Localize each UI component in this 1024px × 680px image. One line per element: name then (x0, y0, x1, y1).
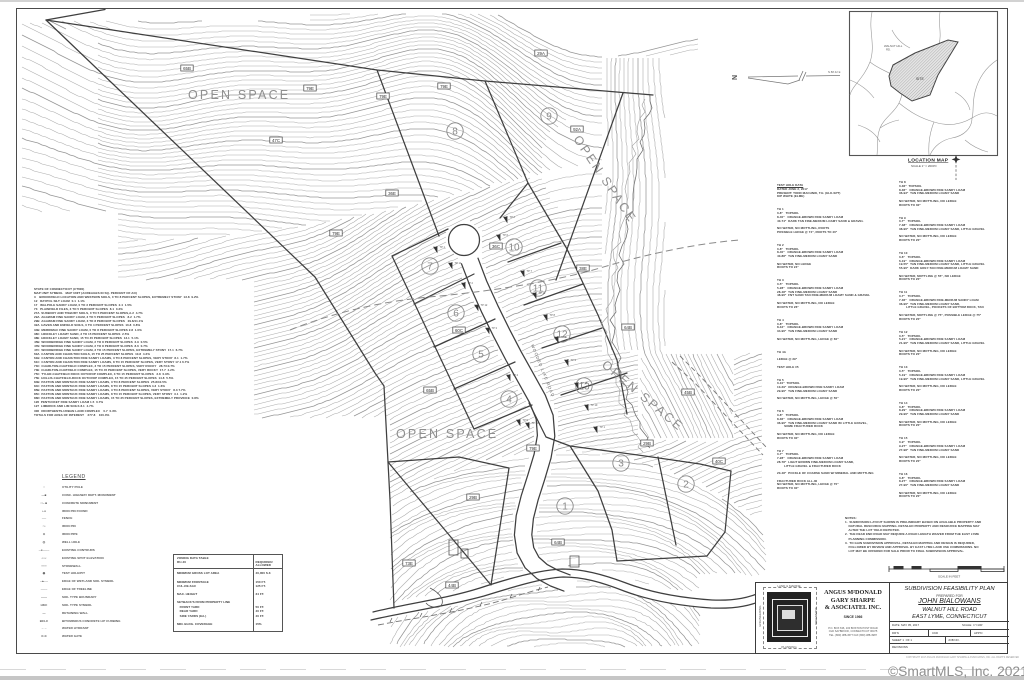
svg-text:TP 9: TP 9 (571, 358, 577, 362)
svg-text:73E: 73E (405, 561, 413, 566)
svg-text:TP 10: TP 10 (591, 403, 598, 407)
svg-text:29B: 29B (469, 495, 477, 500)
svg-text:45B: 45B (684, 390, 692, 395)
svg-text:64B: 64B (554, 540, 562, 545)
svg-text:OPEN SPACE: OPEN SPACE (188, 88, 290, 102)
svg-text:TP 1: TP 1 (600, 425, 606, 429)
svg-text:64B: 64B (624, 325, 632, 330)
svg-text:5: 5 (478, 349, 484, 360)
svg-text:TP 5: TP 5 (523, 418, 529, 422)
svg-text:TP 4: TP 4 (513, 373, 519, 377)
svg-text:TP 2: TP 2 (468, 281, 474, 285)
svg-text:60C: 60C (455, 328, 463, 333)
svg-text:4: 4 (506, 394, 512, 405)
svg-text:TP 11: TP 11 (455, 261, 462, 265)
svg-text:TP 13: TP 13 (532, 421, 539, 425)
svg-text:TP 12: TP 12 (481, 303, 488, 307)
svg-text:38E: 38E (579, 266, 587, 271)
svg-text:79E: 79E (440, 84, 448, 89)
svg-text:SITE: SITE (916, 77, 924, 81)
svg-text:40C: 40C (715, 459, 723, 464)
svg-text:92A: 92A (573, 127, 581, 132)
svg-text:29B: 29B (643, 441, 651, 446)
svg-text:6: 6 (453, 308, 459, 319)
svg-text:RD.: RD. (886, 48, 891, 52)
svg-text:TP 7: TP 7 (527, 269, 533, 273)
svg-text:44B: 44B (448, 583, 456, 588)
svg-text:TP 3: TP 3 (561, 335, 567, 339)
svg-text:65B: 65B (426, 388, 434, 393)
svg-text:36E: 36E (388, 191, 396, 196)
svg-text:TP 2: TP 2 (510, 215, 516, 219)
svg-text:7: 7 (427, 261, 433, 272)
svg-text:9: 9 (546, 111, 552, 122)
svg-text:TP 15: TP 15 (581, 381, 588, 385)
svg-text:TP 14: TP 14 (539, 291, 546, 295)
svg-text:SCALE 1" = 2000'±: SCALE 1" = 2000'± (911, 164, 937, 168)
svg-text:TP 8: TP 8 (550, 313, 556, 317)
svg-text:2: 2 (683, 479, 689, 490)
svg-text:8: 8 (452, 126, 458, 137)
svg-text:TP 6: TP 6 (503, 233, 509, 237)
svg-text:79E: 79E (379, 94, 387, 99)
svg-text:10: 10 (508, 242, 520, 253)
svg-text:65B: 65B (183, 66, 191, 71)
svg-text:TP 3: TP 3 (492, 326, 498, 330)
svg-text:79E: 79E (332, 231, 340, 236)
svg-text:36C: 36C (492, 244, 500, 249)
svg-text:79E: 79E (306, 86, 314, 91)
svg-text:N: N (732, 75, 739, 80)
svg-text:N 88 42 E: N 88 42 E (828, 70, 841, 74)
svg-text:OPEN SPACE: OPEN SPACE (396, 427, 498, 441)
svg-text:SCALE IN FEET: SCALE IN FEET (938, 575, 960, 579)
svg-text:LOCATION MAP: LOCATION MAP (908, 158, 949, 164)
svg-text:1: 1 (562, 501, 568, 512)
svg-text:79E: 79E (529, 446, 537, 451)
svg-text:3: 3 (618, 458, 624, 469)
svg-text:29A: 29A (537, 51, 545, 56)
svg-text:47C: 47C (272, 138, 280, 143)
svg-text:TP 1: TP 1 (440, 245, 446, 249)
